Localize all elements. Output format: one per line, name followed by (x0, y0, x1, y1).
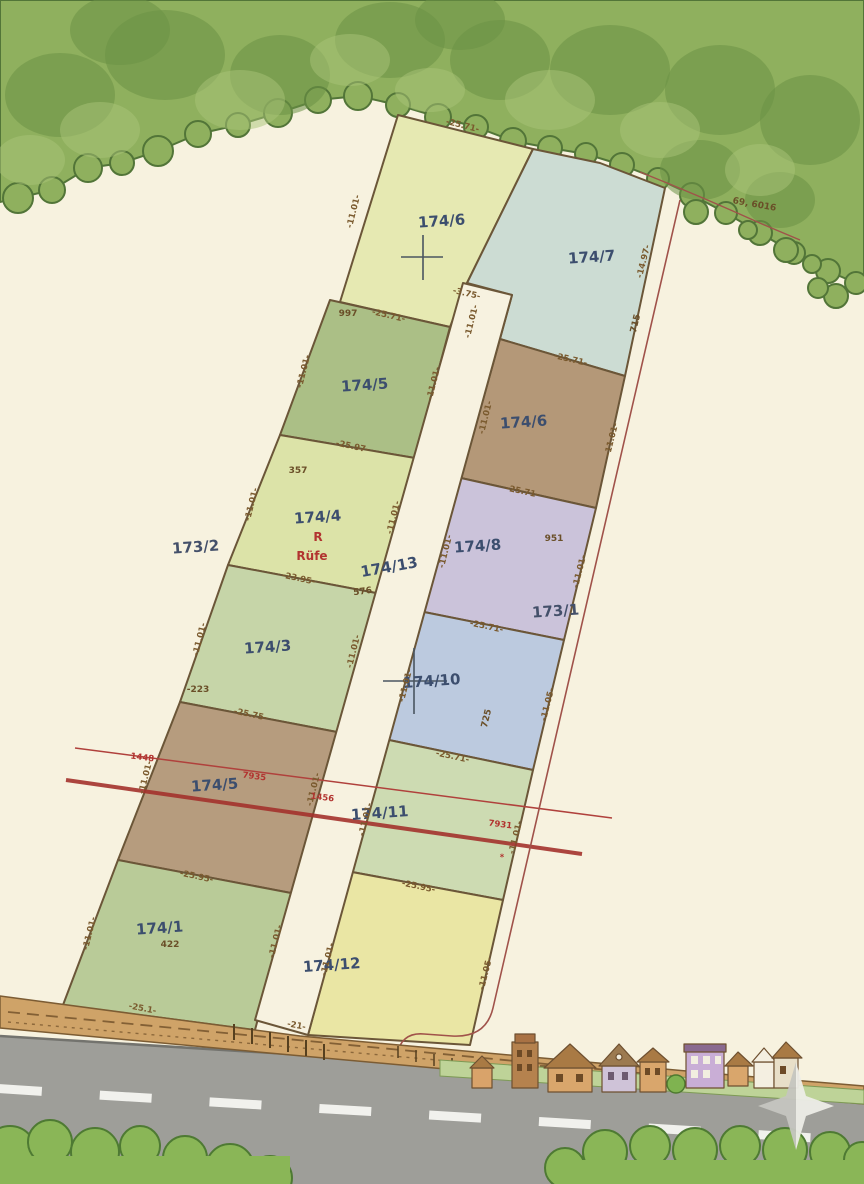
red-annotation: R (313, 530, 322, 544)
cadastral-map: 174/6 174/7 174/5 174/6 174/4 174/8 174/… (0, 0, 864, 1184)
parcel-label: 174/5 (190, 774, 238, 795)
parcel-label: 174/5 (340, 374, 388, 395)
point-number: 997 (339, 309, 358, 319)
parcel-label: 174/4 (293, 506, 341, 527)
point-number: -223 (187, 685, 210, 695)
point-number: 422 (161, 940, 180, 950)
house-tower (512, 1034, 538, 1088)
point-number: 951 (545, 534, 564, 544)
parcel-label: 174/6 (417, 210, 465, 231)
red-annotation: * (500, 853, 505, 863)
parcel-label: 174/8 (453, 535, 501, 556)
parcel-label: 174/1 (135, 917, 183, 938)
parcel-label: 174/7 (567, 246, 615, 267)
parcel-label: 174/3 (243, 636, 291, 657)
neighbor-parcel-label: 173/2 (171, 536, 219, 557)
bush-icon (667, 1075, 685, 1093)
red-annotation: Rüfe (296, 549, 327, 563)
point-number: 357 (289, 466, 308, 476)
house-large-purple (684, 1044, 726, 1088)
parcel-label: 174/6 (499, 411, 547, 432)
neighbor-parcel-label: 173/1 (531, 600, 579, 621)
